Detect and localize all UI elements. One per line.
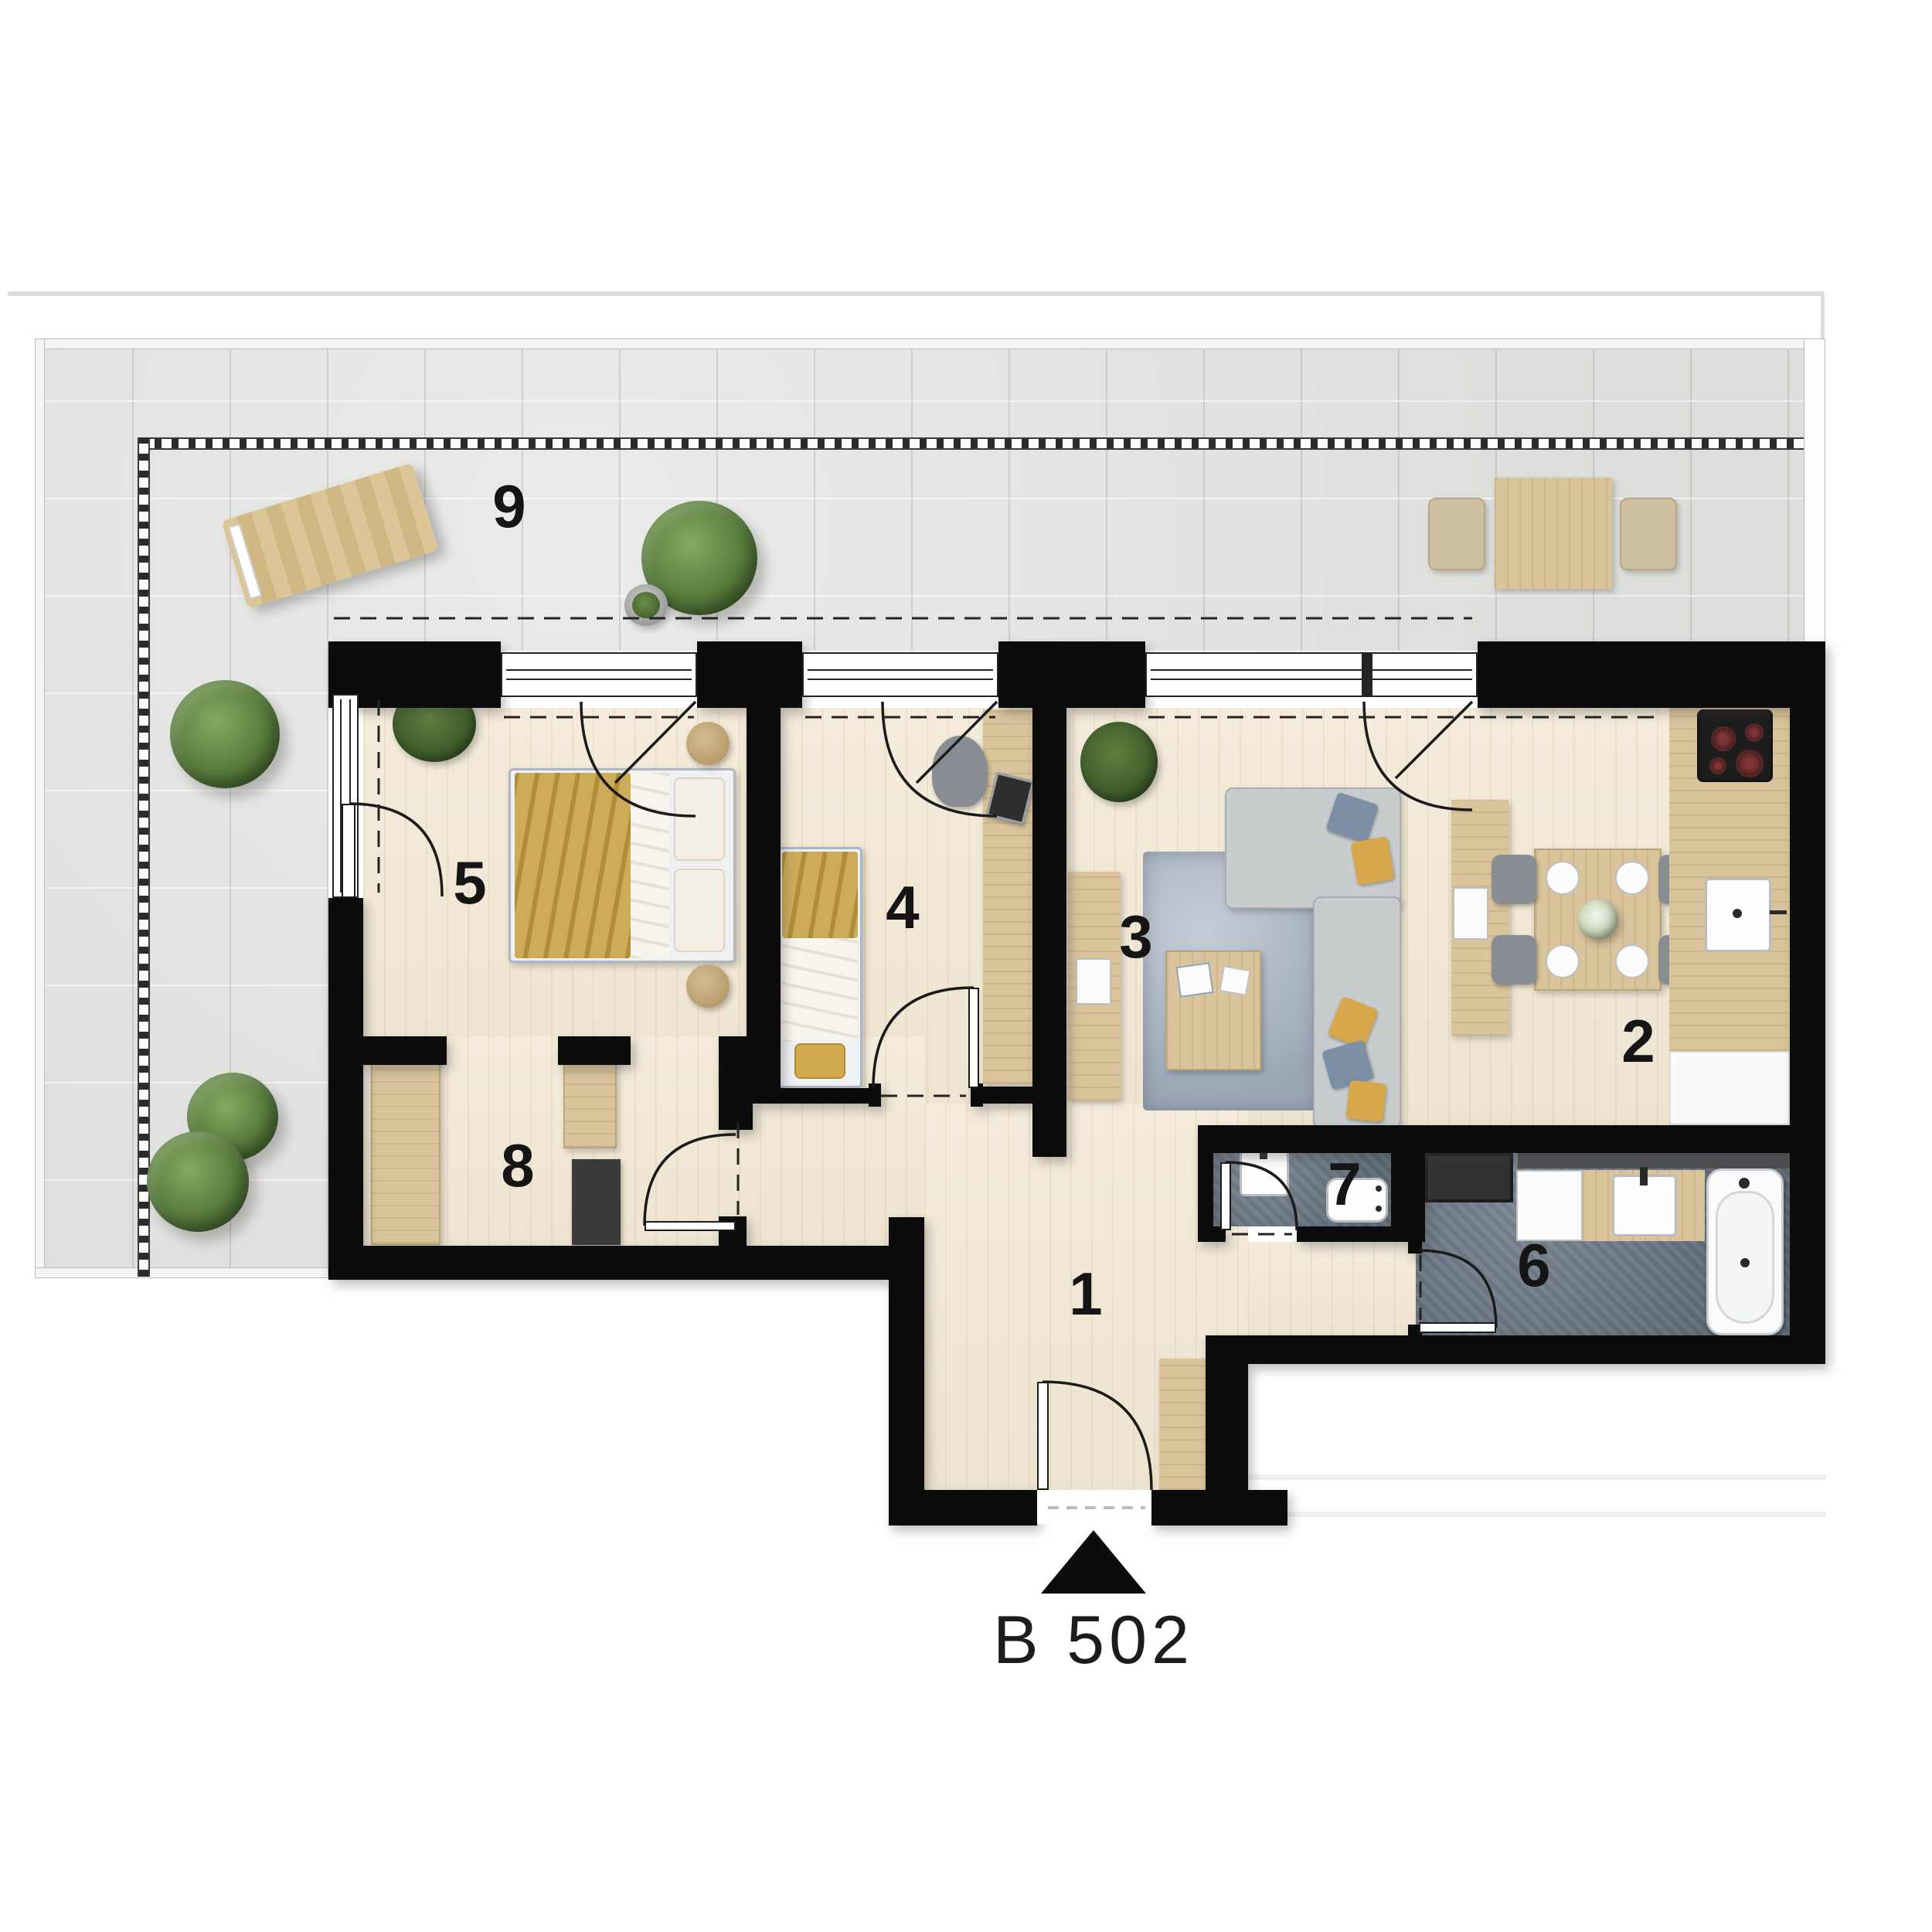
door-arc-bathroom (1419, 1250, 1496, 1328)
door-leaf-living-window (1396, 702, 1472, 778)
door-leaf-bedroom4-window (917, 702, 997, 783)
floor-plan: 1 2 3 4 5 6 7 8 9 B 502 (0, 0, 1932, 1932)
door-swings-layer (0, 0, 1932, 1932)
entrance-arrow-icon (1041, 1530, 1146, 1594)
door-arc-wc (1226, 1162, 1297, 1230)
door-leaf-bedroom5-window (615, 702, 696, 783)
door-arc-balcony (349, 804, 442, 896)
door-arc-closet (645, 1134, 736, 1226)
door-arc-bedroom4 (873, 988, 974, 1088)
door-arc-entrance (1043, 1382, 1151, 1490)
